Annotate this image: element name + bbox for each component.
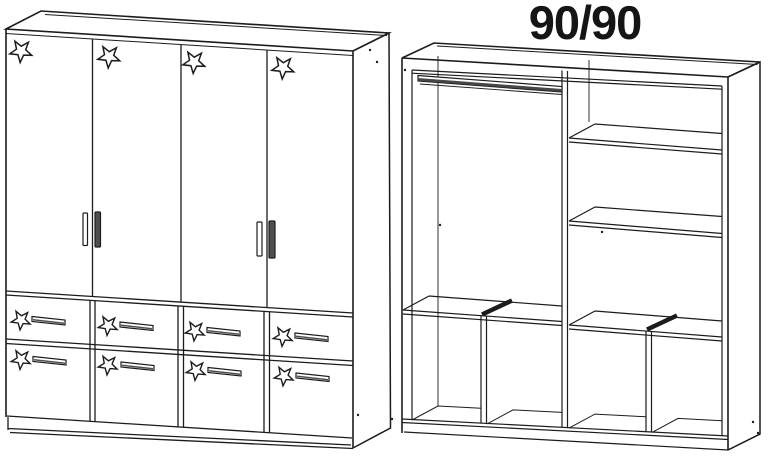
right-side-panel (728, 62, 760, 450)
cubby-divider-1 (481, 316, 487, 424)
door-handle (83, 213, 88, 246)
furniture-diagram: 90/90 (0, 0, 768, 456)
hanging-rail (418, 76, 562, 95)
pin-dot (357, 414, 359, 416)
left-wardrobe-side-panel (353, 33, 391, 448)
star-decal (11, 351, 30, 370)
pin-dot (439, 224, 441, 226)
pin-dot (369, 49, 371, 51)
left-wardrobe-front-outline (6, 29, 353, 448)
cubby-divider-1-top-edge (482, 301, 512, 315)
pin-dot (376, 61, 378, 63)
cubby-divider-3-top-edge (647, 316, 677, 330)
left-wardrobe-plinth (7, 416, 353, 449)
star-decal (272, 58, 294, 79)
door-top-edge (6, 34, 353, 56)
door-star-decals (10, 41, 294, 79)
catalog-drawing-page: 90/90 (0, 0, 768, 456)
door-handles (83, 212, 275, 258)
right-wardrobe-interior-view (402, 43, 760, 450)
dimension-label: 90/90 (529, 0, 642, 49)
star-decal (183, 52, 205, 73)
star-decal (10, 41, 32, 62)
door-handle (95, 212, 101, 247)
star-decal (274, 367, 293, 386)
shelf-middle-right-column (569, 207, 722, 238)
mid-shelf-left-half (403, 296, 562, 326)
drawer-column-gaps (90, 301, 270, 433)
left-wardrobe-top-panel-inner-edge (45, 15, 387, 36)
star-decal (273, 328, 292, 347)
door-handle (257, 222, 262, 256)
pin-dot (404, 69, 406, 71)
star-decal (98, 47, 120, 68)
star-decal (11, 311, 30, 330)
left-wardrobe-top-panel (6, 11, 389, 51)
pin-dot (752, 421, 754, 423)
left-wardrobe-front-view (6, 11, 391, 449)
pin-dot (391, 418, 393, 420)
cubby-divider-3 (646, 331, 652, 432)
star-decal (98, 317, 117, 336)
right-wardrobe-bottom-rail (402, 419, 728, 440)
center-divider (562, 71, 568, 428)
shelf-upper (569, 124, 722, 154)
shelf-pin-dots (357, 49, 759, 434)
pin-dot (601, 231, 603, 233)
star-decal (186, 362, 205, 381)
star-decal (185, 322, 204, 341)
door-bottom-edge (6, 291, 353, 317)
star-decal (98, 356, 117, 375)
door-handle (269, 221, 275, 258)
pin-dot (757, 432, 759, 434)
